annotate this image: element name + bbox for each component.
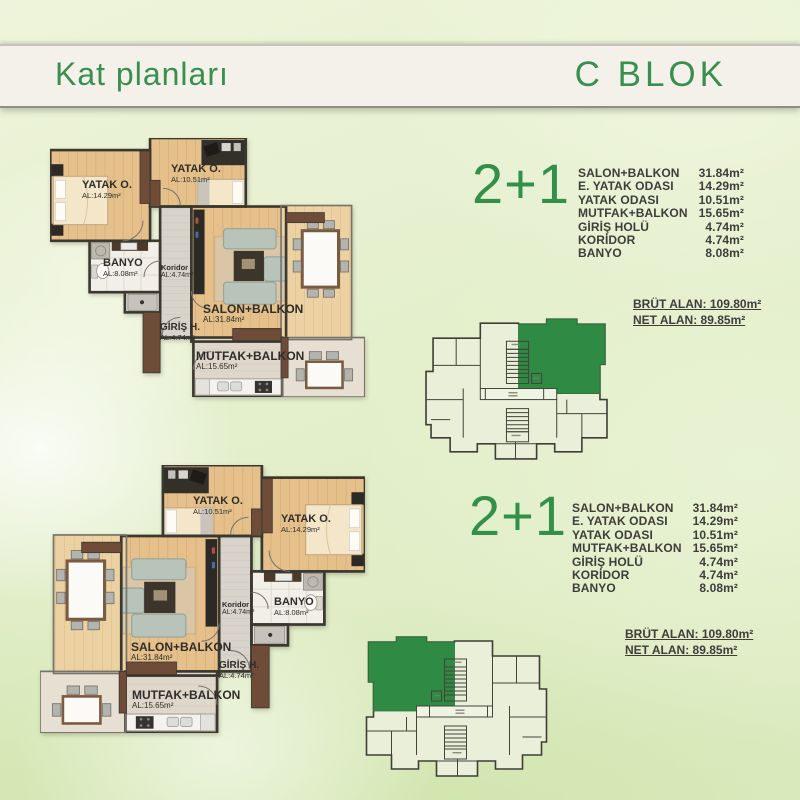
plan-label-corridor: Koridor AL:4.74m² [222,601,254,617]
room-area: 4.74m² [699,569,738,582]
room-area: 10.51m² [693,529,738,542]
plan-label-bedroom-main: YATAK O. AL:14.29m² [281,514,331,534]
room-row: BANYO8.08m² [578,247,744,260]
plan-label-entrance: GİRİŞ H. AL:4.74m² [219,661,259,680]
room-area: 15.65m² [693,542,738,555]
room-row: KORİDOR4.74m² [578,234,744,247]
room-area-list: SALON+BALKON31.84m² E. YATAK ODASI14.29m… [572,502,738,596]
room-area: 14.29m² [699,180,744,193]
room-row: KORİDOR4.74m² [572,569,738,582]
plan-label-bathroom: BANYO AL:8.08m² [103,258,143,278]
room-row: MUTFAK+BALKON15.65m² [572,542,738,555]
room-area: 14.29m² [693,515,738,528]
room-area: 10.51m² [699,194,744,207]
room-row: E. YATAK ODASI14.29m² [578,180,744,193]
net-alan: NET ALAN: 89.85m² [625,642,753,658]
plan-label-kitchen: MUTFAK+BALKON AL:15.65m² [132,689,240,711]
room-row: YATAK ODASI10.51m² [578,194,744,207]
room-name: MUTFAK+BALKON [578,207,688,220]
room-name: E. YATAK ODASI [572,515,668,528]
floor-plan-unit-2: YATAK O. AL:10.51m² YATAK O. AL:14.29m² … [40,465,365,733]
room-name: BANYO [572,582,616,595]
room-name: BANYO [578,247,622,260]
brut-alan: BRÜT ALAN: 109.80m² [633,296,761,312]
key-plan-unit-2 [364,629,550,779]
room-row: YATAK ODASI10.51m² [572,529,738,542]
room-name: SALON+BALKON [578,167,680,180]
plan-label-livingroom: SALON+BALKON AL:31.84m² [131,641,231,663]
room-row: SALON+BALKON31.84m² [572,502,738,515]
room-area: 31.84m² [699,167,744,180]
room-area: 8.08m² [699,582,738,595]
room-name: MUTFAK+BALKON [572,542,682,555]
area-summary: BRÜT ALAN: 109.80m² NET ALAN: 89.85m² [633,296,761,328]
room-row: SALON+BALKON31.84m² [578,167,744,180]
plan-label-bathroom: BANYO AL:8.08m² [274,597,314,617]
room-name: YATAK ODASI [578,194,659,207]
room-area: 4.74m² [705,221,744,234]
floor-plan-brochure-page: { "header": { "title": "Kat planları", "… [0,0,800,800]
unit-type-label: 2+1 [472,156,570,212]
room-row: MUTFAK+BALKON15.65m² [578,207,744,220]
room-area: 8.08m² [705,247,744,260]
page-title: Kat planları [55,56,229,93]
plan-label-kitchen: MUTFAK+BALKON AL:15.65m² [196,350,304,372]
plan-label-bedroom-2: YATAK O. AL:10.51m² [171,164,221,184]
plan-label-bedroom-2: YATAK O. AL:10.51m² [193,496,243,516]
brut-alan: BRÜT ALAN: 109.80m² [625,626,753,642]
plan-label-bedroom-main: YATAK O. AL:14.29m² [82,180,132,200]
room-area: 4.74m² [699,556,738,569]
room-row: E. YATAK ODASI14.29m² [572,515,738,528]
area-summary: BRÜT ALAN: 109.80m² NET ALAN: 89.85m² [625,626,753,658]
net-alan: NET ALAN: 89.85m² [633,312,761,328]
room-name: KORİDOR [572,569,629,582]
plan-label-entrance: GİRİŞ H. AL:4.74m² [160,323,200,342]
room-area-list: SALON+BALKON31.84m² E. YATAK ODASI14.29m… [578,167,744,261]
key-plan-drawing [423,311,609,462]
room-name: E. YATAK ODASI [578,180,674,193]
key-plan-drawing [364,629,550,779]
room-name: SALON+BALKON [572,502,674,515]
room-area: 4.74m² [705,234,744,247]
block-title: C BLOK [575,55,727,95]
room-name: YATAK ODASI [572,529,653,542]
room-row: BANYO8.08m² [572,582,738,595]
floor-plan-unit-1: YATAK O. AL:14.29m² YATAK O. AL:10.51m² … [50,138,365,397]
key-plan-unit-1 [423,311,609,462]
unit-type-label: 2+1 [469,488,567,544]
room-area: 31.84m² [693,502,738,515]
room-area: 15.65m² [699,207,744,220]
plan-label-corridor: Koridor AL:4.74m² [161,264,193,280]
room-name: KORİDOR [578,234,635,247]
plan-label-livingroom: SALON+BALKON AL:31.84m² [203,303,303,325]
